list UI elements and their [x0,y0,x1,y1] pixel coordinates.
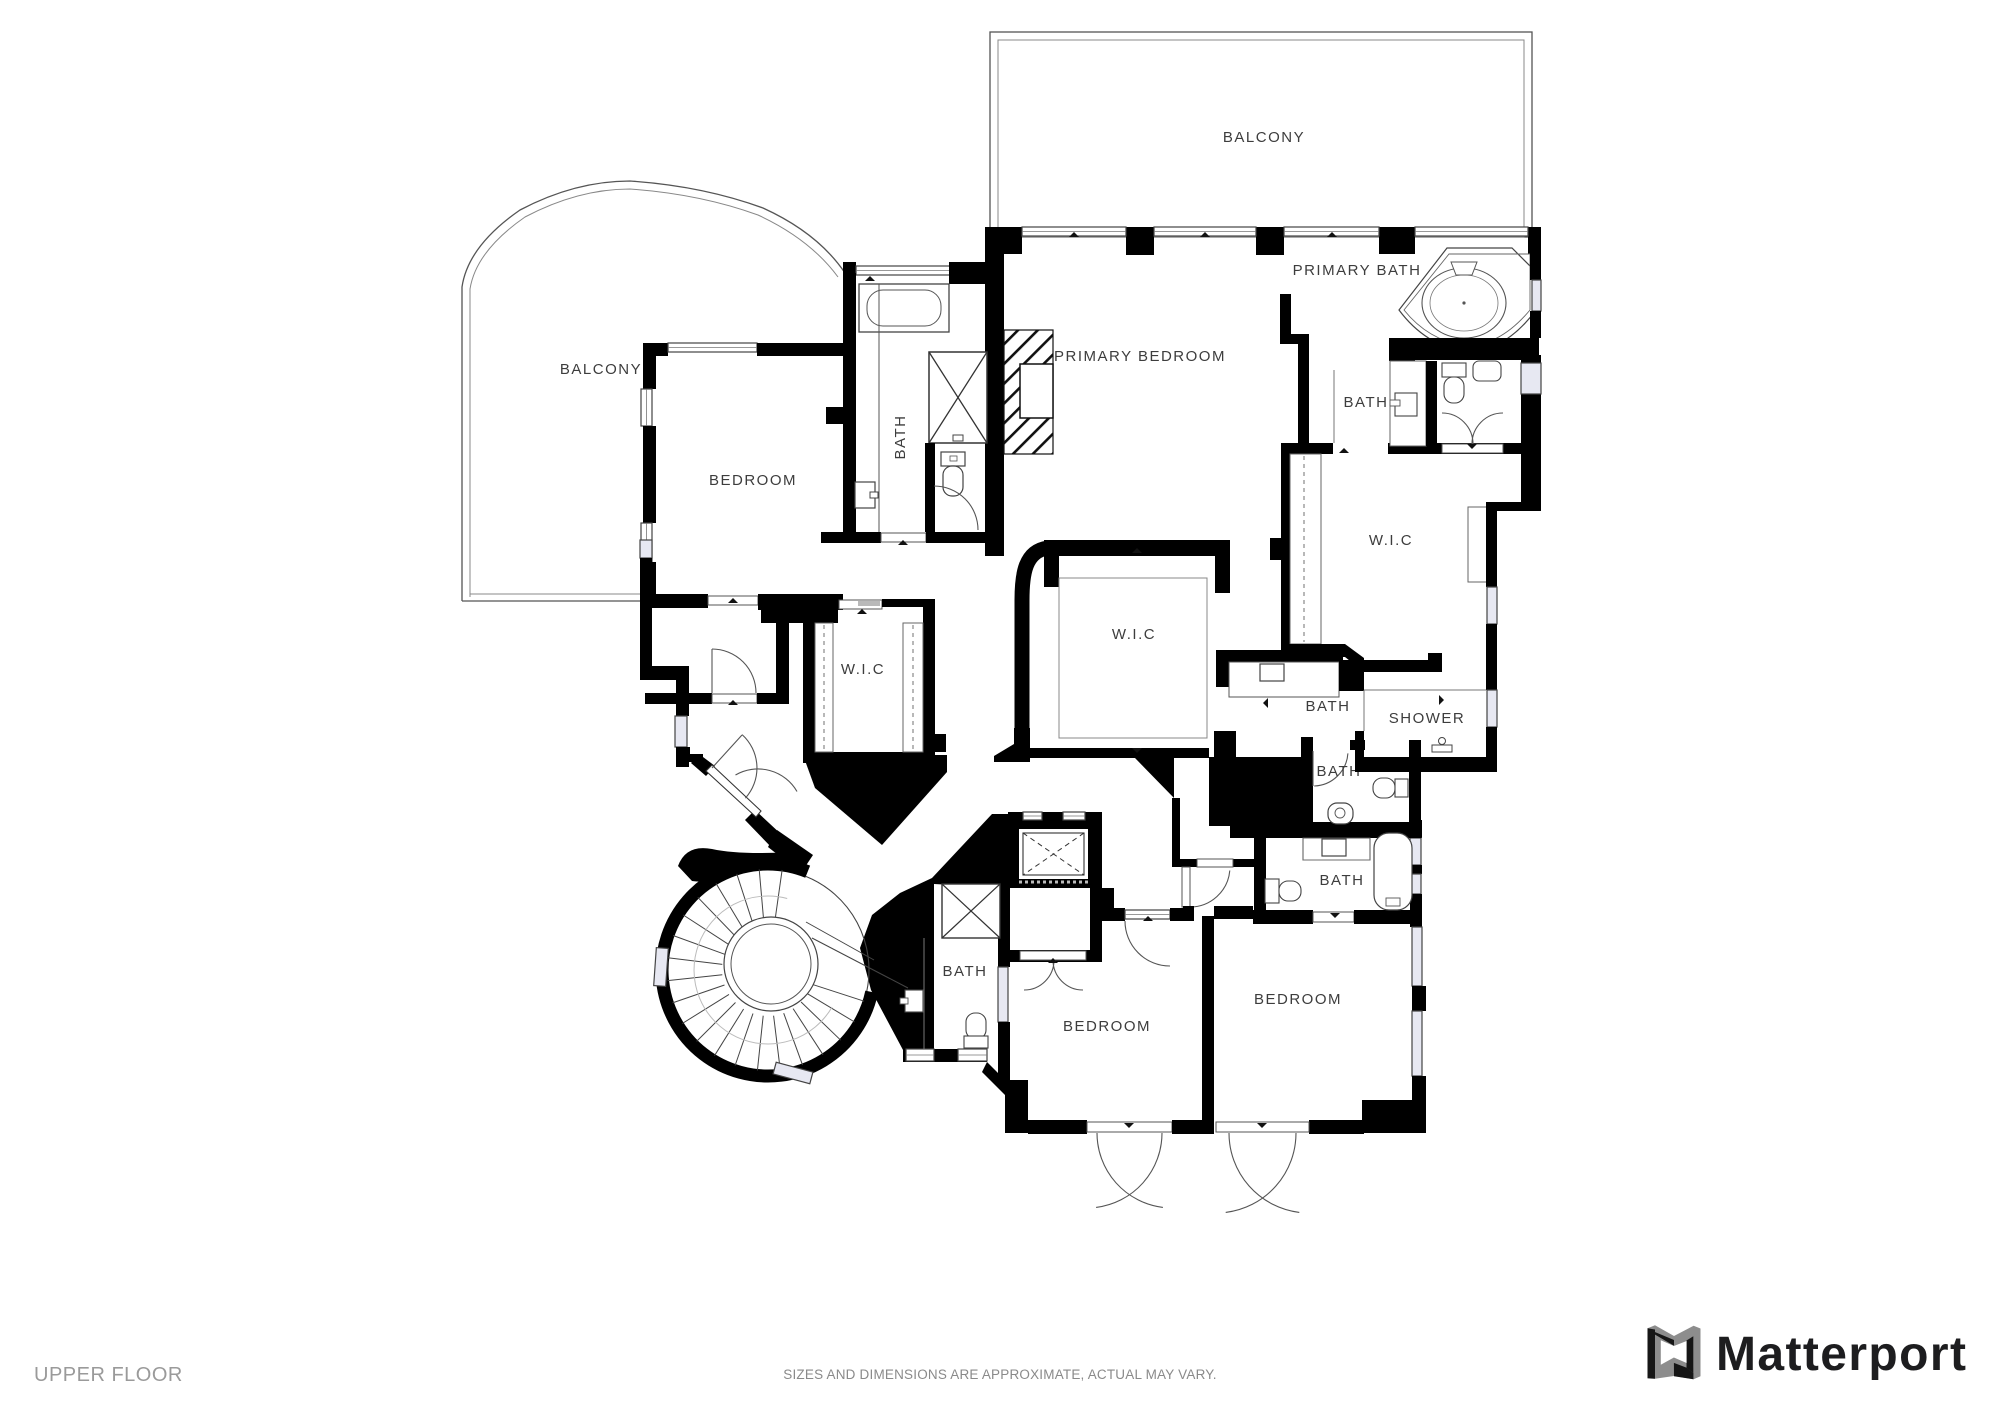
svg-text:SIZES AND DIMENSIONS ARE APPRO: SIZES AND DIMENSIONS ARE APPROXIMATE, AC… [783,1367,1216,1382]
svg-text:PRIMARY BATH: PRIMARY BATH [1293,262,1422,279]
svg-text:BEDROOM: BEDROOM [1063,1018,1151,1035]
svg-text:UPPER FLOOR: UPPER FLOOR [34,1364,183,1386]
svg-text:BEDROOM: BEDROOM [1254,991,1342,1008]
svg-text:BATH: BATH [1320,872,1365,889]
svg-text:BALCONY: BALCONY [560,361,642,378]
svg-text:BATH: BATH [1306,698,1351,715]
svg-text:BEDROOM: BEDROOM [709,472,797,489]
svg-text:Matterport: Matterport [1716,1328,1967,1381]
svg-text:BATH: BATH [1344,394,1389,411]
svg-text:BATH: BATH [943,963,988,980]
svg-text:SHOWER: SHOWER [1389,710,1466,727]
svg-text:BATH: BATH [892,415,909,460]
svg-text:W.I.C: W.I.C [1369,532,1413,549]
svg-text:W.I.C: W.I.C [841,661,885,678]
svg-text:PRIMARY BEDROOM: PRIMARY BEDROOM [1054,348,1226,365]
svg-text:W.I.C: W.I.C [1112,626,1156,643]
svg-text:BATH: BATH [1317,763,1362,780]
svg-text:BALCONY: BALCONY [1223,129,1305,146]
